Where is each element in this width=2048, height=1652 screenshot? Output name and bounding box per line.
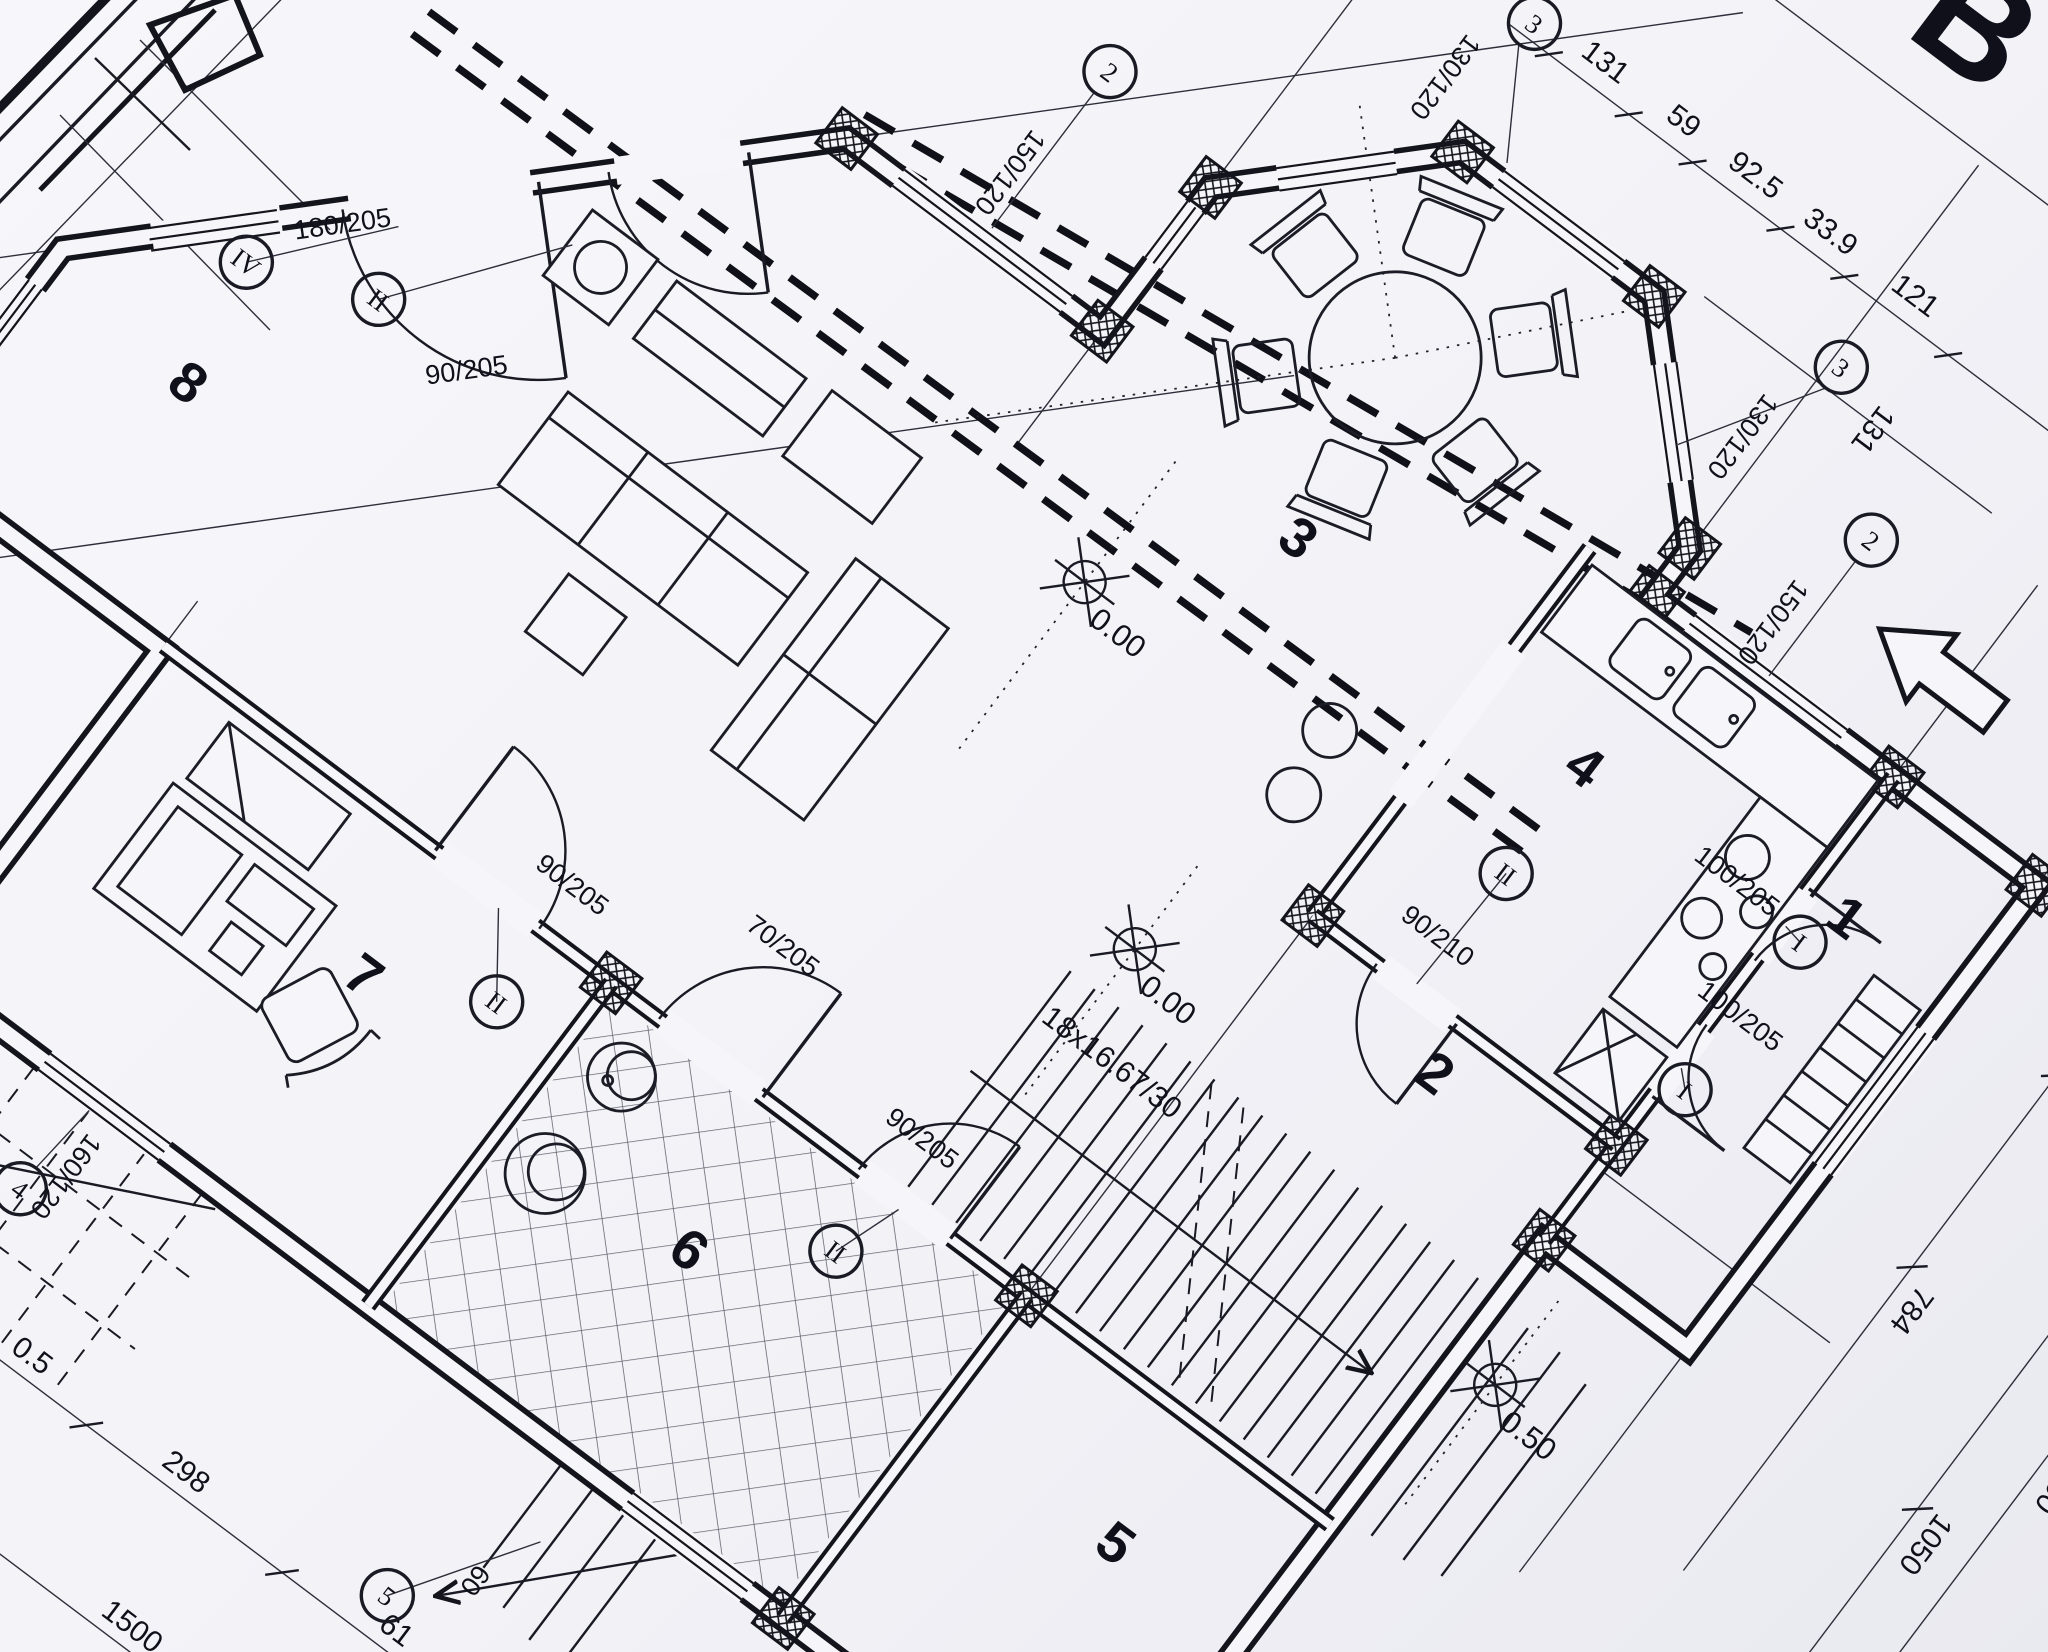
- side-table: [525, 574, 626, 675]
- room-label-kitchen: 4: [1554, 731, 1617, 800]
- svg-text:90/205: 90/205: [423, 349, 509, 390]
- svg-text:150/120: 150/120: [1732, 574, 1815, 670]
- sheet-corner-letter: B: [1884, 0, 2048, 124]
- svg-text:150/120: 150/120: [969, 125, 1052, 221]
- svg-text:1500: 1500: [96, 1594, 169, 1652]
- bar-stool: [1292, 693, 1368, 769]
- bathroom-tile-floor: [385, 1000, 1010, 1602]
- svg-text:IV: IV: [225, 242, 266, 283]
- blueprint-photo: 18x16.67/30: [0, 0, 2048, 1652]
- svg-text:0.5: 0.5: [5, 1330, 58, 1381]
- room-label-bedroom: 5: [1084, 1508, 1147, 1577]
- room-label-living: 8: [157, 348, 220, 417]
- svg-text:130/120: 130/120: [1701, 389, 1784, 485]
- bar-stool: [1256, 757, 1332, 833]
- svg-text:130/120: 130/120: [1404, 29, 1487, 125]
- svg-text:90/210: 90/210: [1396, 899, 1480, 973]
- level-marker-hall: 0.00: [993, 844, 1267, 1150]
- svg-text:0.00: 0.00: [1133, 968, 1202, 1032]
- svg-text:59: 59: [1660, 98, 1707, 144]
- plant-box: [543, 210, 658, 325]
- svg-text:II: II: [1489, 857, 1521, 892]
- svg-text:0.00: 0.00: [1083, 601, 1152, 665]
- room-label-dining: 3: [1267, 503, 1330, 572]
- entrance-arrow-icon: [1854, 595, 2020, 749]
- svg-text:1050: 1050: [1892, 1508, 1959, 1581]
- svg-text:784: 784: [1883, 1280, 1939, 1340]
- svg-text:II: II: [480, 985, 512, 1020]
- room-label-hall: 2: [1404, 1038, 1467, 1107]
- plan-rotated-group: 18x16.67/30: [0, 0, 2048, 1652]
- svg-text:0.50: 0.50: [1494, 1404, 1563, 1468]
- svg-text:60: 60: [454, 1559, 496, 1601]
- svg-text:298: 298: [156, 1444, 216, 1500]
- svg-text:5: 5: [372, 1580, 401, 1612]
- coffee-table: [783, 391, 922, 524]
- svg-text:90/205: 90/205: [530, 848, 614, 922]
- svg-text:61: 61: [373, 1607, 420, 1652]
- svg-text:1250: 1250: [2028, 1447, 2048, 1520]
- furniture: [60, 0, 2048, 1652]
- svg-text:92.5: 92.5: [1722, 145, 1788, 206]
- svg-text:33.9: 33.9: [1797, 201, 1863, 262]
- svg-text:131: 131: [1575, 34, 1635, 90]
- svg-text:2: 2: [1095, 56, 1124, 88]
- svg-text:70/205: 70/205: [741, 909, 825, 983]
- svg-text:3: 3: [1826, 352, 1855, 384]
- svg-text:2: 2: [1856, 525, 1885, 557]
- floor-plan-drawing: 18x16.67/30: [0, 0, 2048, 1652]
